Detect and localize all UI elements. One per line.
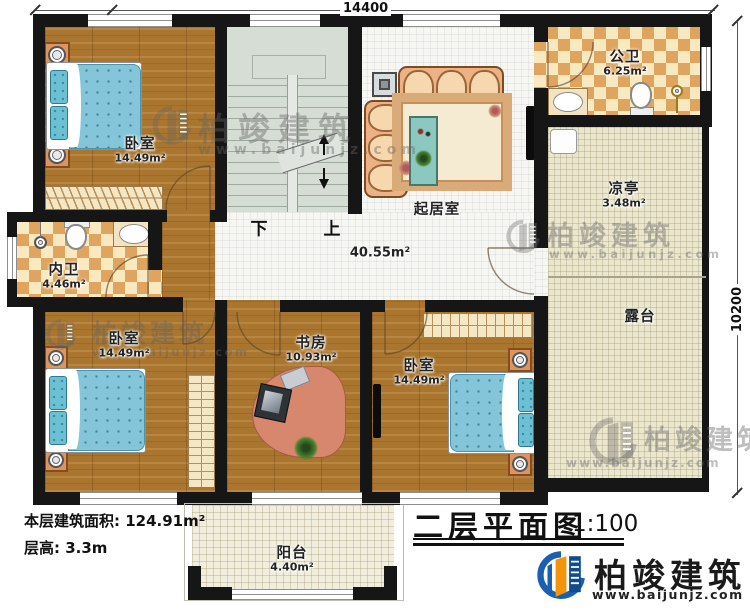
toilet-icon [65, 224, 87, 250]
wall [33, 210, 167, 222]
lamp-icon [512, 352, 528, 368]
room-label-pavilion: 凉亭 3.48m² [602, 182, 645, 211]
table-dot [417, 128, 424, 135]
stair-down-label: 下 [251, 215, 268, 240]
bed-sheet [502, 374, 514, 450]
room-label-living: 起居室 [414, 202, 461, 218]
wardrobe [423, 313, 533, 338]
floor-plan: 柏竣建筑 www.baijunjz.com 柏竣建筑 www.baijunjz.… [0, 0, 750, 614]
bed-sheet [68, 370, 80, 449]
closet [45, 186, 163, 210]
balcony-railing [232, 589, 353, 600]
room-label-balcony: 阳台 4.40m² [270, 546, 313, 575]
window [250, 14, 320, 27]
dimension-height: 10200 [730, 284, 745, 335]
title-underline [413, 543, 624, 546]
watermark-site: www.baijunjz.com [198, 142, 421, 158]
wall [33, 492, 80, 505]
wall [372, 300, 385, 312]
wardrobe [188, 374, 215, 488]
floor-lamp-inner [379, 79, 390, 90]
scale-label: 1:100 [572, 511, 638, 537]
building-area-text: 本层建筑面积: 124.91m² [24, 510, 205, 531]
room-label-bedroom-bottom-left: 卧室 14.49m² [98, 332, 149, 361]
bed-cushion [49, 411, 67, 445]
room-label-inner-bath: 内卫 4.46m² [42, 263, 85, 292]
watermark-logo-icon [504, 214, 542, 260]
dimension-width: 14400 [340, 1, 391, 16]
wall [215, 300, 227, 505]
lamp-icon [512, 456, 528, 472]
plant-icon [294, 436, 318, 460]
room-area-living: 40.55m² [350, 247, 410, 262]
brand-website: www.baijunjz.com [592, 587, 744, 602]
bed-cushion [49, 376, 67, 410]
sink-basin-icon [553, 92, 583, 112]
wall [360, 300, 372, 505]
room-label-bedroom-bottom-right: 卧室 14.49m² [393, 359, 444, 388]
wall [33, 14, 45, 212]
window [701, 47, 711, 91]
stair-down-arrow-icon [319, 179, 329, 189]
pavilion-terrace-divider [548, 276, 706, 278]
bed-sheet [69, 64, 81, 147]
room-label-public-bath: 公卫 6.25m² [603, 50, 646, 79]
room-label-bedroom-top-left: 卧室 14.49m² [114, 137, 165, 166]
wall [425, 300, 534, 312]
vestibule-floor [162, 210, 215, 300]
lamp-cord [40, 222, 41, 238]
lamp-pole [676, 96, 678, 113]
wall [548, 115, 712, 127]
sliding-door [252, 492, 362, 505]
bed-cushion [50, 70, 68, 104]
dimension-line-right [737, 22, 738, 495]
window [7, 237, 17, 279]
bed-cushion [50, 106, 68, 140]
wall [534, 14, 548, 42]
watermark-logo-icon [44, 310, 78, 360]
window [88, 14, 172, 27]
room-label-study: 书房 10.93m² [285, 336, 336, 365]
toilet-icon [630, 82, 652, 109]
brand-logo-icon [534, 547, 588, 605]
watermark-site: www.baijunjz.com [566, 456, 721, 470]
stair-up-label: 上 [324, 215, 341, 240]
floor-height-text: 层高: 3.3m [24, 537, 107, 558]
tv-icon [373, 384, 381, 438]
table-dot [425, 131, 431, 137]
room-label-terrace: 露台 [625, 309, 656, 325]
wall [534, 296, 548, 505]
bed-cushion [518, 378, 534, 412]
window [403, 14, 500, 27]
wall [280, 300, 360, 312]
watermark-site: www.baijunjz.com [549, 247, 722, 261]
window [80, 492, 177, 505]
rug-flower [488, 104, 502, 118]
water-heater-icon [550, 129, 577, 154]
sink-basin-icon [119, 224, 149, 244]
title-underline [413, 538, 624, 540]
watermark-name: 柏竣建筑 [644, 418, 750, 457]
lamp-icon [48, 452, 64, 468]
wall [548, 478, 709, 492]
bed-cushion [518, 413, 534, 447]
